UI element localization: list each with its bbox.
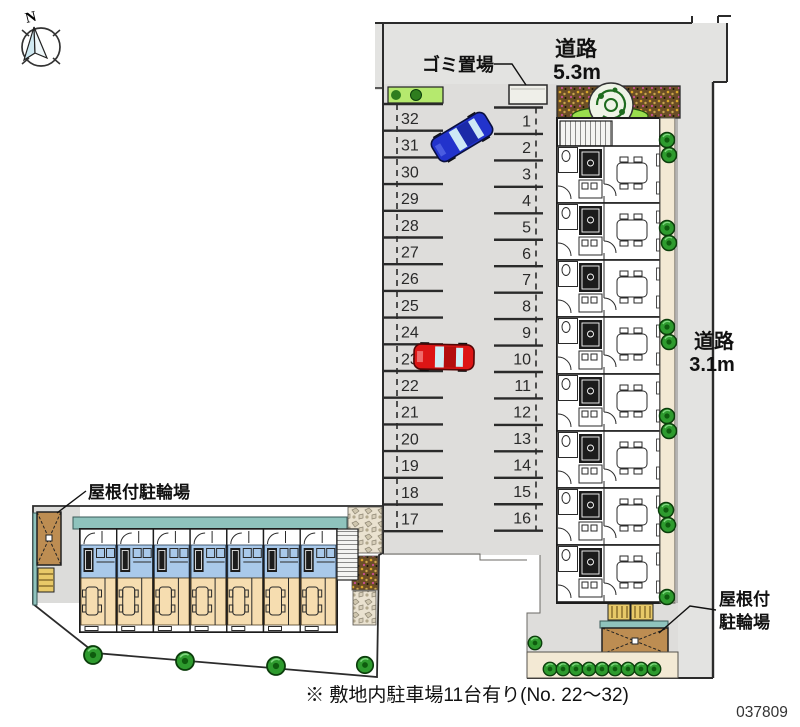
covered-bike-parking-west xyxy=(37,512,61,565)
bike-parking-left-label: 屋根付駐輪場 xyxy=(88,482,190,502)
plan-number: 037809 xyxy=(736,704,788,721)
stall-number: 4 xyxy=(522,193,531,210)
stall-number: 19 xyxy=(401,458,419,475)
stall-number: 14 xyxy=(513,457,531,474)
stairs xyxy=(337,529,358,580)
stall-number: 26 xyxy=(401,271,419,288)
planting-strip xyxy=(388,87,443,103)
site-plan: 32313029282726252423222120191817 1234567… xyxy=(0,0,800,727)
site-plan-canvas: 32313029282726252423222120191817 1234567… xyxy=(0,0,800,727)
stall-number: 18 xyxy=(401,485,419,502)
stall-number: 7 xyxy=(522,272,531,289)
stall-number: 27 xyxy=(401,245,419,262)
bike-parking-right-label-2: 駐輪場 xyxy=(719,612,770,632)
covered-bike-parking-east xyxy=(602,628,668,654)
east-building xyxy=(557,83,680,605)
stall-number: 16 xyxy=(513,510,531,527)
balcony-strip xyxy=(73,517,347,529)
footer-note: ※ 敷地内駐車場11台有り(No. 22～32) xyxy=(305,684,629,706)
stall-number: 28 xyxy=(401,218,419,235)
stall-number: 2 xyxy=(522,140,531,157)
stall-number: 32 xyxy=(401,111,419,128)
stall-number: 20 xyxy=(401,431,419,448)
road-right-width: 3.1m xyxy=(689,354,735,376)
bike-parking-right-label-1: 屋根付 xyxy=(719,589,770,609)
stall-number: 11 xyxy=(514,378,531,395)
stall-number: 10 xyxy=(513,352,531,369)
stall-number: 12 xyxy=(513,404,531,421)
stall-number: 25 xyxy=(401,298,419,315)
car-red xyxy=(414,342,474,372)
road-right-name: 道路 xyxy=(694,329,735,353)
stall-number: 1 xyxy=(522,114,531,131)
stall-number: 5 xyxy=(522,219,531,236)
stall-number: 3 xyxy=(522,166,531,183)
stall-number: 30 xyxy=(401,164,419,181)
stone-bed xyxy=(353,591,376,625)
stall-number: 13 xyxy=(513,431,531,448)
stall-number: 22 xyxy=(401,378,419,395)
stall-number: 24 xyxy=(401,325,419,342)
stall-number: 31 xyxy=(401,138,419,155)
stairs xyxy=(560,121,612,146)
compass-north-label: N xyxy=(24,9,39,27)
stall-number: 9 xyxy=(522,325,531,342)
stall-number: 15 xyxy=(513,484,531,501)
road-top-name: 道路 xyxy=(555,37,598,61)
stall-number: 29 xyxy=(401,191,419,208)
bike-rack-west xyxy=(38,568,54,592)
garbage-label: ゴミ置場 xyxy=(422,54,494,75)
stall-number: 21 xyxy=(401,405,419,422)
stall-number: 17 xyxy=(401,512,419,529)
road-top-width: 5.3m xyxy=(553,61,601,84)
stall-number: 6 xyxy=(522,246,531,263)
west-building-site xyxy=(33,506,383,677)
stall-number: 8 xyxy=(522,299,531,316)
compass: N xyxy=(22,9,60,66)
garbage-box xyxy=(509,85,547,104)
